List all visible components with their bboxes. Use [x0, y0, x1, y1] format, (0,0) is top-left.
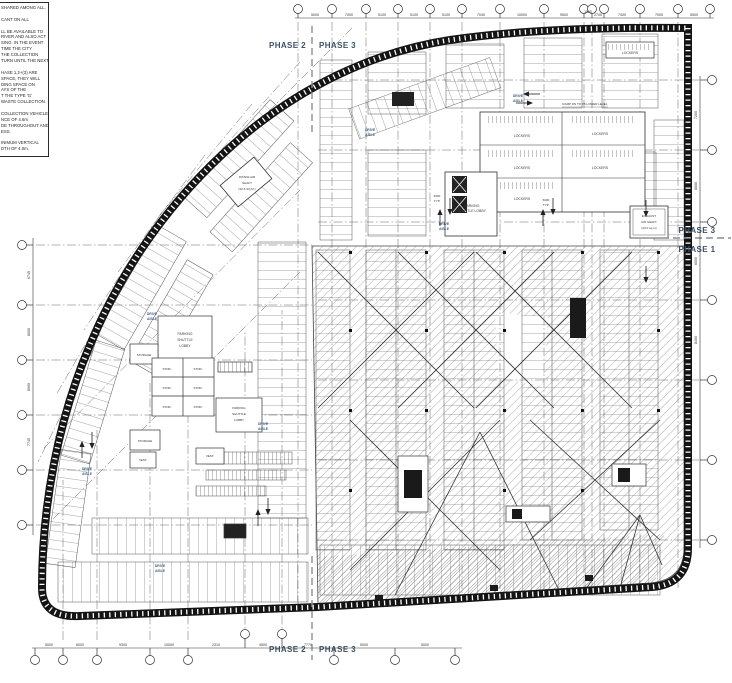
exhaust-shaft-label: AIR SHAFT — [641, 220, 657, 224]
exhaust-shaft-label: EXHAUST — [642, 214, 656, 218]
dim-value: 4500 — [259, 643, 267, 647]
parking-shuttle-lobby-label: PARKING — [177, 332, 192, 336]
dim-value: 8000 — [27, 383, 31, 391]
lockers-label: LOCKERS — [622, 51, 639, 55]
parking-shuttle-lobby-label: PARKING — [464, 204, 479, 208]
dim-value: 7000 — [345, 13, 353, 17]
parking-shuttle-lobby-label: SHUTTLE — [177, 338, 193, 342]
typ-dim-label: TYP. — [543, 203, 549, 207]
phase-label-right-lower: PHASE 1 — [678, 245, 715, 254]
dim-value: 8000 — [27, 328, 31, 336]
lockers-label: LOCKERS — [592, 166, 609, 170]
dim-value: 2310 — [212, 643, 220, 647]
dim-value: 8400 — [694, 336, 698, 344]
drive-aisle-label: DRIVE — [155, 564, 166, 568]
drive-aisle-label: DRIVE — [365, 128, 376, 132]
parking-shuttle-lobby-label: SHUTTLE — [232, 412, 246, 416]
exhaust-shaft-label: (22.0 sq.m) — [641, 226, 656, 230]
ramp-note-label: RAMP DN TO P5 LOWER LEVEL — [562, 102, 608, 106]
stor-label: STOR. — [193, 367, 202, 371]
drive-aisle-label: AISLE — [258, 427, 269, 431]
phase-label-top-right: PHASE 3 — [319, 41, 356, 50]
stor-label: STOR. — [193, 405, 202, 409]
drive-aisle-label: DRIVE — [147, 312, 158, 316]
drive-aisle-label: DRIVE — [82, 467, 93, 471]
lockers-label: LOCKERS — [514, 134, 531, 138]
floor-plan-sheet: LOCKERS LOCKERS LOCKERS LOCKERS LOCKERS … — [0, 0, 732, 683]
note-line: WASTE COLLECTION. — [1, 99, 47, 105]
stor-label: STOR. — [162, 367, 171, 371]
central-shuttle-lobby: PARKING SHUTTLE LOBBY — [445, 172, 497, 236]
dim-value: 5100 — [378, 13, 386, 17]
parking-stalls-bottom-left — [58, 452, 308, 602]
dim-value: 5000 — [421, 643, 429, 647]
dim-value: 10000 — [517, 13, 527, 17]
drive-aisle-label: AISLE — [147, 317, 158, 321]
typ-dim-label: 6000 — [543, 198, 550, 202]
bottom-dimension-text: 5000 6000 9300 10000 2310 4500 7770 5000… — [45, 643, 429, 647]
vest-label: VEST. — [139, 458, 148, 462]
intake-shaft-label: SHAFT — [242, 181, 252, 185]
drive-aisle-label: AISLE — [439, 227, 450, 231]
grid-bubbles-bottom — [31, 630, 460, 665]
note-line: DE THROUGHOUT AND — [1, 123, 47, 129]
exhaust-air-shaft-room: EXHAUST AIR SHAFT (22.0 sq.m) — [630, 206, 668, 238]
intake-shaft-label: (30.6 SQ.M.) — [238, 187, 255, 191]
dim-value: 10000 — [164, 643, 174, 647]
parking-level-plan-drawing: LOCKERS LOCKERS LOCKERS LOCKERS LOCKERS … — [0, 0, 732, 683]
dim-value: 5000 — [311, 13, 319, 17]
dim-value: 7770 — [304, 643, 312, 647]
grid-bubbles-right — [700, 76, 717, 545]
storage-label: STORAGE — [138, 439, 153, 443]
stor-label: STOR. — [162, 386, 171, 390]
parking-shuttle-lobby-label: LOBBY — [234, 418, 244, 422]
dim-value: 5000 — [360, 643, 368, 647]
dim-value: 8000 — [694, 182, 698, 190]
stor-label: STOR. — [162, 405, 171, 409]
storage-label: STORAGE — [137, 353, 152, 357]
phase-label-bottom-right: PHASE 3 — [319, 645, 356, 654]
note-line: TURN UNTIL THE NEXT — [1, 58, 47, 64]
dim-value: 7000 — [655, 13, 663, 17]
drive-aisle-label: AISLE — [82, 472, 93, 476]
grid-bubbles-top — [294, 5, 715, 19]
dim-value: 5000 — [45, 643, 53, 647]
lockers-label: LOCKERS — [514, 197, 531, 201]
dim-value: 7400 — [618, 13, 626, 17]
dim-value: 6000 — [76, 643, 84, 647]
drive-aisle-label: AISLE — [513, 99, 524, 103]
phase-label-right-upper: PHASE 3 — [678, 226, 715, 235]
dim-value: 9300 — [119, 643, 127, 647]
lockers-label: LOCKERS — [514, 166, 531, 170]
dim-value: 5100 — [410, 13, 418, 17]
drive-aisle-label: AISLE — [155, 569, 166, 573]
drive-aisle-label: DRIVE — [439, 222, 450, 226]
typ-dim-label: TYP. — [434, 199, 440, 203]
drive-aisle-label: DRIVE — [513, 94, 524, 98]
general-notes-block: SHARED AMONG ALL. CANT ON ALL LL BE AVAI… — [0, 2, 49, 157]
parking-shuttle-lobby-label: SHUTTLE LOBBY — [458, 209, 486, 213]
dim-value: 2700 — [594, 13, 602, 17]
lockers-label: LOCKERS — [592, 132, 609, 136]
dim-value: 6000 — [694, 257, 698, 265]
dim-value: 7200 — [694, 111, 698, 119]
left-dimension-text: 6745 8000 8000 7745 — [27, 271, 31, 446]
stair-icon — [392, 92, 414, 106]
note-line: SPACE, THEY WILL — [1, 76, 47, 82]
vest-label: VEST. — [206, 454, 215, 458]
parking-shuttle-lobby-label: LOBBY — [179, 344, 191, 348]
dim-value: 6745 — [27, 271, 31, 279]
note-line: DTH OF 4.0m. — [1, 146, 47, 152]
note-line: SHARED AMONG ALL. — [1, 5, 47, 11]
drive-aisle-label: AISLE — [365, 133, 376, 137]
dim-value: 5100 — [442, 13, 450, 17]
phase-label-top-left: PHASE 2 — [269, 41, 306, 50]
dim-value: 7040 — [477, 13, 485, 17]
dim-value: 7745 — [27, 438, 31, 446]
drive-aisle-label: DRIVE — [258, 422, 269, 426]
dim-value: 1100 — [584, 10, 592, 14]
phase-label-bottom-left: PHASE 2 — [269, 645, 306, 654]
parking-shuttle-lobby-label: PARKING — [232, 406, 246, 410]
intake-shaft-label: INTAKE AIR — [239, 175, 256, 179]
dim-value: 5500 — [690, 13, 698, 17]
typ-dim-label: 6000 — [434, 194, 441, 198]
dim-value: 9500 — [560, 13, 568, 17]
stor-label: STOR. — [193, 386, 202, 390]
